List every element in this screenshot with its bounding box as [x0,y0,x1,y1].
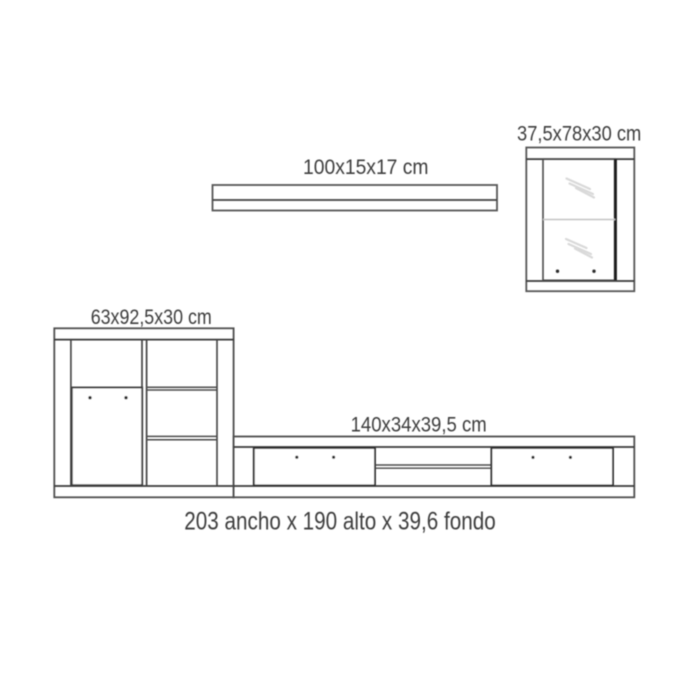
svg-text:63x92,5x30 cm: 63x92,5x30 cm [91,305,212,329]
svg-text:203 ancho x 190 alto x 39,6 fo: 203 ancho x 190 alto x 39,6 fondo [184,508,495,536]
svg-text:37,5x78x30 cm: 37,5x78x30 cm [517,122,641,146]
svg-text:140x34x39,5 cm: 140x34x39,5 cm [351,413,487,437]
svg-text:100x15x17 cm: 100x15x17 cm [303,155,429,179]
